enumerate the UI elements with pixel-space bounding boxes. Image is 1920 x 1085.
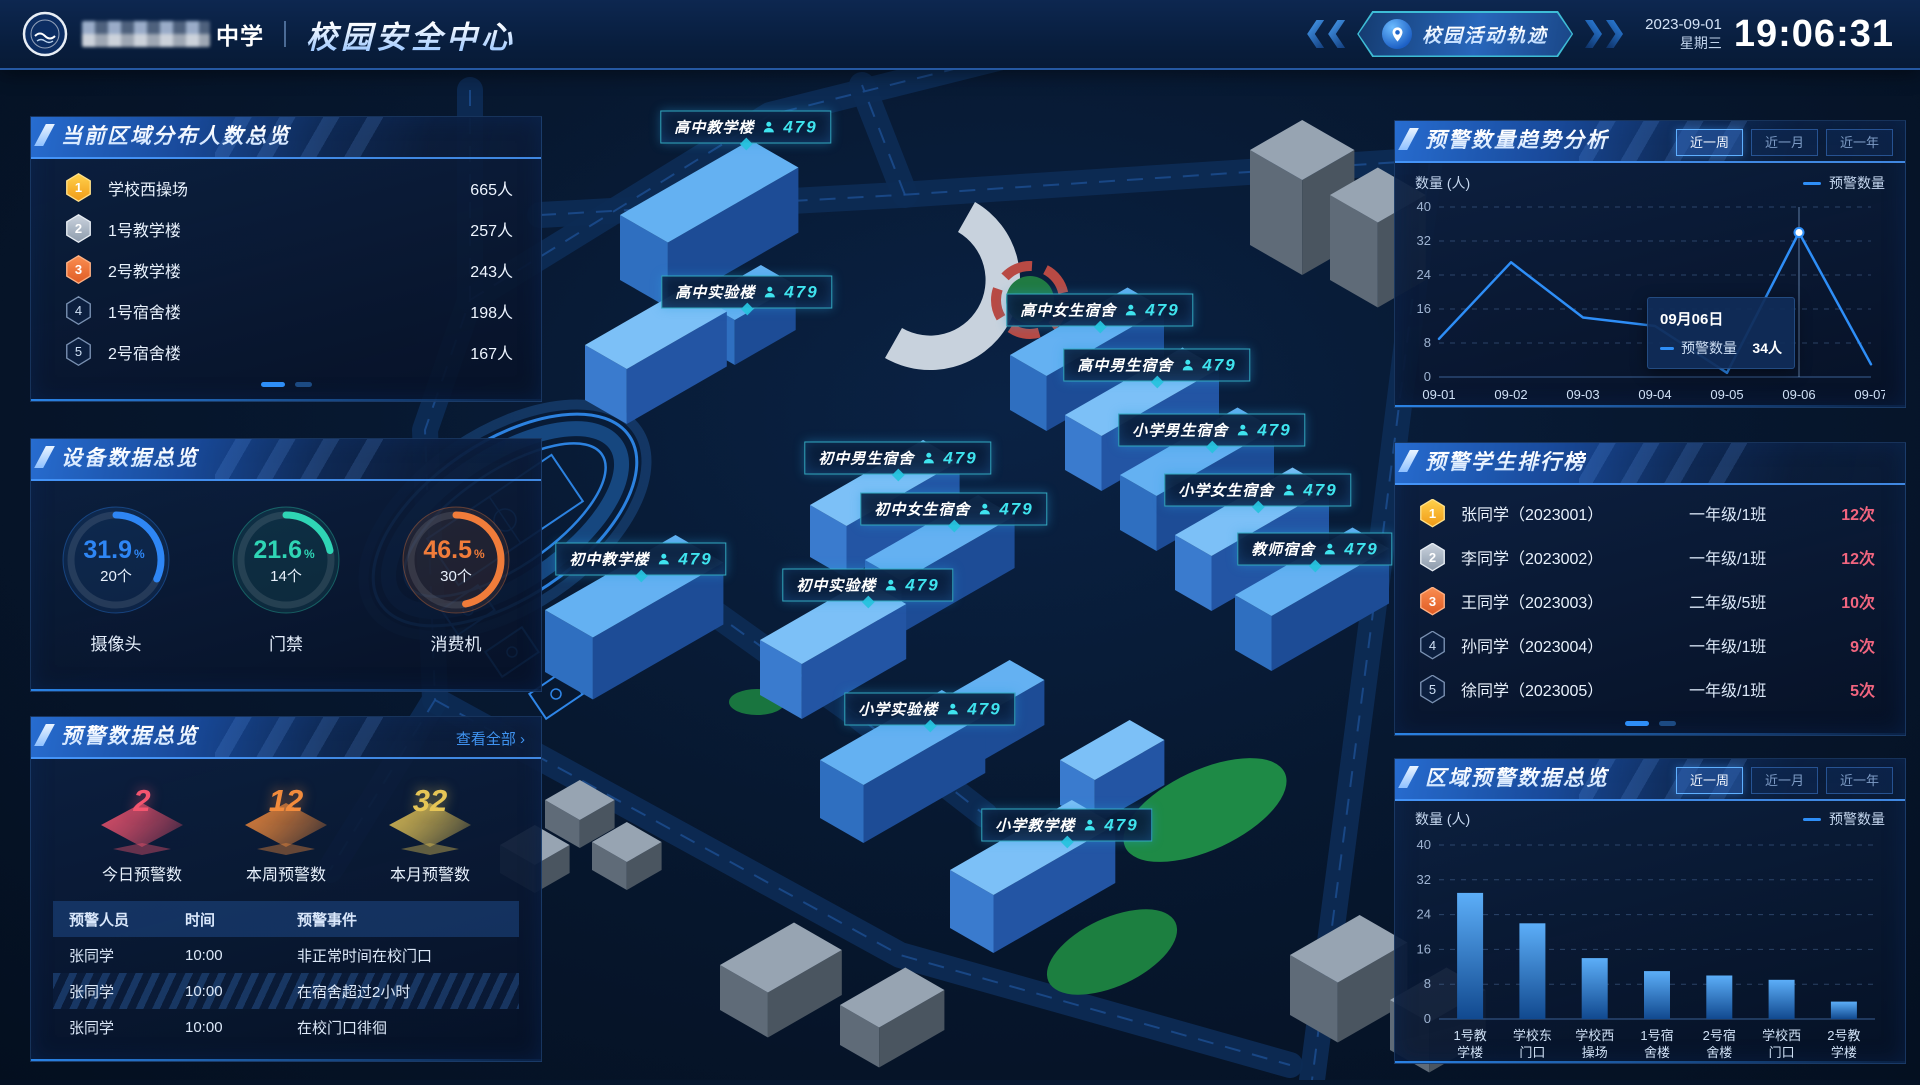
building-name: 高中教学楼	[674, 117, 754, 138]
person-icon	[884, 579, 897, 592]
stat-diamond-reflection	[401, 843, 459, 855]
building-label[interactable]: 小学男生宿舍 479	[1118, 414, 1305, 447]
building-label[interactable]: 教师宿舍 479	[1237, 533, 1392, 566]
svg-text:0: 0	[1424, 369, 1431, 384]
building-pin-icon	[1151, 376, 1164, 389]
warning-count: 12次	[1841, 501, 1875, 525]
student-name: 张同学（2023001）	[1461, 501, 1689, 525]
svg-text:40: 40	[1417, 199, 1431, 214]
stat-value: 12	[227, 783, 345, 819]
tab-近一月[interactable]: 近一月	[1751, 129, 1818, 156]
warning-stat: 12 本周预警数	[227, 783, 345, 885]
building-pin-icon	[948, 520, 961, 533]
svg-text:8: 8	[1424, 335, 1431, 350]
student-class: 一年级/1班	[1689, 633, 1850, 657]
building-count: 479	[1145, 300, 1179, 320]
location-pin-icon	[1382, 19, 1412, 49]
person-icon	[1236, 424, 1249, 437]
warning-data-panel: 预警数据总览 查看全部 › 2 今日预警数12 本周预警数32 本月预警数 预警…	[30, 716, 542, 1062]
gauge-ring: 21.6% 14个	[227, 501, 345, 619]
warning-stat: 32 本月预警数	[371, 783, 489, 885]
svg-text:门口: 门口	[1519, 1045, 1545, 1060]
gauge-label: 消费机	[377, 630, 535, 655]
rank-badge: 4	[1419, 631, 1446, 660]
svg-text:学楼: 学楼	[1831, 1045, 1857, 1060]
svg-text:1号教: 1号教	[1453, 1028, 1486, 1043]
page-dot[interactable]	[1625, 721, 1649, 726]
area-name: 2号教学楼	[108, 258, 470, 282]
student-name: 徐同学（2023005）	[1461, 677, 1689, 701]
device-gauge: 31.9% 20个 摄像头	[37, 501, 195, 655]
legend: 预警数量	[1803, 809, 1885, 829]
panel-title: 预警数据总览	[31, 717, 199, 757]
rank-badge: 4	[65, 296, 92, 325]
view-all-link[interactable]: 查看全部 ›	[456, 728, 525, 749]
building-pin-icon	[892, 469, 905, 482]
building-count: 479	[783, 117, 817, 137]
track-button-label: 校园活动轨迹	[1422, 21, 1548, 48]
building-name: 高中女生宿舍	[1020, 300, 1116, 321]
tooltip-value: 34人	[1752, 338, 1782, 358]
building-count: 479	[784, 282, 818, 302]
svg-text:20个: 20个	[100, 568, 132, 585]
rank-badge: 3	[65, 255, 92, 284]
area-row: 2 1号教学楼 257人	[31, 208, 541, 249]
current-time: 19:06:31	[1734, 13, 1894, 56]
area-row: 4 1号宿舍楼 198人	[31, 290, 541, 331]
region-warning-panel: 区域预警数据总览 近一周近一月近一年 数量 (人) 预警数量 081624324…	[1394, 758, 1906, 1064]
stat-label: 今日预警数	[83, 861, 201, 885]
area-distribution-panel: 当前区域分布人数总览 1 学校西操场 665人2 1号教学楼 257人3 2号教…	[30, 116, 542, 402]
region-bar-chart[interactable]: 08162432401号教学楼学校东门口学校西操场1号宿舍楼2号宿舍楼学校西门口…	[1403, 831, 1897, 1072]
top-header: 中学 校园安全中心 校园活动轨迹 2023-09-01 星期三 19:06:31	[0, 0, 1920, 70]
svg-text:学校西: 学校西	[1762, 1028, 1801, 1043]
table-header-row: 预警人员时间预警事件	[53, 901, 519, 937]
student-name: 李同学（2023002）	[1461, 545, 1689, 569]
area-name: 学校西操场	[108, 176, 470, 200]
building-pin-icon	[924, 720, 937, 733]
school-logo	[22, 11, 68, 57]
building-pin-icon	[1309, 560, 1322, 573]
gauge-ring: 46.5% 30个	[397, 501, 515, 619]
building-label[interactable]: 小学实验楼 479	[844, 693, 1015, 726]
gauge-row: 31.9% 20个 摄像头 21.6% 14个 门禁 46.5% 30个 消费机	[31, 481, 541, 655]
student-name: 孙同学（2023004）	[1461, 633, 1689, 657]
svg-text:舍楼: 舍楼	[1706, 1045, 1732, 1060]
person-icon	[1181, 359, 1194, 372]
svg-text:0: 0	[1424, 1011, 1431, 1026]
tooltip-series-swatch	[1660, 347, 1674, 350]
person-icon	[946, 703, 959, 716]
stat-value: 32	[371, 783, 489, 819]
page-dot[interactable]	[295, 382, 312, 387]
chart-tooltip: 09月06日 预警数量 34人	[1647, 297, 1795, 369]
svg-text:2号教: 2号教	[1827, 1028, 1860, 1043]
svg-text:09-05: 09-05	[1710, 387, 1743, 402]
building-count: 479	[943, 448, 977, 468]
building-label[interactable]: 高中实验楼 479	[661, 276, 832, 309]
ranking-pagination	[1395, 721, 1905, 726]
student-class: 一年级/1班	[1689, 545, 1841, 569]
page-title: 校园安全中心	[306, 12, 516, 57]
stat-label: 本月预警数	[371, 861, 489, 885]
stat-label: 本周预警数	[227, 861, 345, 885]
ranking-row: 5 徐同学（2023005） 一年级/1班 5次	[1395, 667, 1905, 711]
panel-title: 预警数量趋势分析	[1395, 121, 1609, 161]
device-gauge: 21.6% 14个 门禁	[207, 501, 365, 655]
panel-title: 区域预警数据总览	[1395, 759, 1609, 799]
building-label[interactable]: 初中教学楼 479	[555, 543, 726, 576]
header-divider	[284, 21, 286, 47]
svg-text:09-06: 09-06	[1782, 387, 1815, 402]
svg-text:09-03: 09-03	[1566, 387, 1599, 402]
date-block: 2023-09-01 星期三	[1645, 16, 1722, 52]
chevron-left-decoration	[1307, 20, 1345, 48]
tooltip-date: 09月06日	[1660, 308, 1782, 329]
ranking-list: 1 张同学（2023001） 一年级/1班 12次2 李同学（2023002） …	[1395, 485, 1905, 711]
page-dot[interactable]	[1659, 721, 1676, 726]
ranking-row: 2 李同学（2023002） 一年级/1班 12次	[1395, 535, 1905, 579]
svg-text:40: 40	[1417, 837, 1431, 852]
area-name: 1号宿舍楼	[108, 299, 470, 323]
area-name: 1号教学楼	[108, 217, 470, 241]
panel-title: 预警学生排行榜	[1395, 443, 1586, 483]
building-name: 小学男生宿舍	[1132, 420, 1228, 441]
panel-title: 设备数据总览	[31, 439, 199, 479]
svg-text:09-07: 09-07	[1854, 387, 1885, 402]
person-icon	[1323, 543, 1336, 556]
ranking-row: 3 王同学（2023003） 二年级/5班 10次	[1395, 579, 1905, 623]
table-row: 张同学10:00非正常时间在校门口	[53, 937, 519, 973]
student-class: 一年级/1班	[1689, 677, 1850, 701]
svg-text:24: 24	[1417, 267, 1431, 282]
warning-stats: 2 今日预警数12 本周预警数32 本月预警数	[31, 759, 541, 889]
svg-text:32: 32	[1417, 872, 1431, 887]
person-icon	[762, 121, 775, 134]
gauge-label: 摄像头	[37, 630, 195, 655]
trend-analysis-panel: 预警数量趋势分析 近一周近一月近一年 数量 (人) 预警数量 081624324…	[1394, 120, 1906, 408]
legend-line-swatch	[1803, 818, 1821, 821]
table-row: 张同学10:00在校门口徘徊	[53, 1009, 519, 1045]
building-label[interactable]: 高中男生宿舍 479	[1063, 349, 1250, 382]
stat-diamond-reflection	[257, 843, 315, 855]
building-count: 479	[967, 699, 1001, 719]
y-axis-label: 数量 (人)	[1415, 173, 1470, 193]
device-data-panel: 设备数据总览 31.9% 20个 摄像头 21.6% 14个 门禁 46.5% …	[30, 438, 542, 692]
legend-line-swatch	[1803, 182, 1821, 185]
school-name-blurred	[82, 21, 210, 47]
building-name: 初中实验楼	[796, 575, 876, 596]
svg-text:09-04: 09-04	[1638, 387, 1671, 402]
building-pin-icon	[635, 570, 648, 583]
building-pin-icon	[862, 596, 875, 609]
page-dot[interactable]	[261, 382, 285, 387]
area-name: 2号宿舍楼	[108, 340, 470, 364]
warning-count: 5次	[1850, 677, 1875, 701]
rank-badge: 1	[1419, 499, 1446, 528]
svg-text:30个: 30个	[440, 568, 472, 585]
area-count: 198人	[470, 299, 513, 323]
building-name: 小学实验楼	[858, 699, 938, 720]
building-pin-icon	[740, 138, 753, 151]
building-pin-icon	[1252, 501, 1265, 514]
warning-count: 10次	[1841, 589, 1875, 613]
current-weekday: 星期三	[1645, 35, 1722, 53]
building-pin-icon	[1061, 836, 1074, 849]
svg-text:16: 16	[1417, 941, 1431, 956]
area-count: 665人	[470, 176, 513, 200]
building-name: 小学教学楼	[995, 815, 1075, 836]
school-name-suffix: 中学	[216, 17, 264, 51]
rank-badge: 2	[1419, 543, 1446, 572]
building-count: 479	[905, 575, 939, 595]
tab-近一年[interactable]: 近一年	[1826, 767, 1893, 794]
building-label[interactable]: 高中教学楼 479	[660, 111, 831, 144]
stat-value: 2	[83, 783, 201, 819]
person-icon	[763, 286, 776, 299]
table-row: 张同学10:00在宿舍超过2小时	[53, 973, 519, 1009]
area-count: 167人	[470, 340, 513, 364]
tooltip-series: 预警数量	[1681, 338, 1737, 358]
building-label[interactable]: 初中实验楼 479	[782, 569, 953, 602]
student-class: 一年级/1班	[1689, 501, 1841, 525]
svg-text:门口: 门口	[1769, 1045, 1795, 1060]
svg-text:09-01: 09-01	[1422, 387, 1455, 402]
svg-text:8: 8	[1424, 976, 1431, 991]
building-label[interactable]: 小学女生宿舍 479	[1164, 474, 1351, 507]
chevron-right-decoration	[1585, 20, 1623, 48]
warning-count: 12次	[1841, 545, 1875, 569]
svg-text:学楼: 学楼	[1457, 1045, 1483, 1060]
school-name: 中学	[82, 17, 264, 51]
rank-badge: 3	[1419, 587, 1446, 616]
svg-text:09-02: 09-02	[1494, 387, 1527, 402]
gauge-ring: 31.9% 20个	[57, 501, 175, 619]
building-name: 初中女生宿舍	[874, 499, 970, 520]
svg-text:2号宿: 2号宿	[1703, 1028, 1736, 1043]
building-name: 高中实验楼	[675, 282, 755, 303]
student-ranking-panel: 预警学生排行榜 1 张同学（2023001） 一年级/1班 12次2 李同学（2…	[1394, 442, 1906, 736]
building-name: 小学女生宿舍	[1178, 480, 1274, 501]
area-count: 257人	[470, 217, 513, 241]
area-count: 243人	[470, 258, 513, 282]
person-icon	[1282, 484, 1295, 497]
warning-stat: 2 今日预警数	[83, 783, 201, 885]
svg-text:舍楼: 舍楼	[1644, 1045, 1670, 1060]
svg-text:14个: 14个	[270, 568, 302, 585]
tab-近一月[interactable]: 近一月	[1751, 767, 1818, 794]
area-row: 1 学校西操场 665人	[31, 167, 541, 208]
area-list: 1 学校西操场 665人2 1号教学楼 257人3 2号教学楼 243人4 1号…	[31, 159, 541, 372]
region-tabs: 近一周近一月近一年	[1676, 767, 1893, 794]
svg-text:学校西: 学校西	[1575, 1028, 1614, 1043]
building-pin-icon	[1206, 441, 1219, 454]
building-count: 479	[1104, 815, 1138, 835]
building-count: 479	[1257, 420, 1291, 440]
building-label[interactable]: 初中男生宿舍 479	[804, 442, 991, 475]
tab-近一年[interactable]: 近一年	[1826, 129, 1893, 156]
building-name: 初中教学楼	[569, 549, 649, 570]
svg-text:操场: 操场	[1582, 1045, 1608, 1060]
svg-text:24: 24	[1417, 907, 1431, 922]
svg-text:1号宿: 1号宿	[1640, 1028, 1673, 1043]
building-label[interactable]: 小学教学楼 479	[981, 809, 1152, 842]
building-label[interactable]: 初中女生宿舍 479	[860, 493, 1047, 526]
ranking-row: 1 张同学（2023001） 一年级/1班 12次	[1395, 491, 1905, 535]
building-count: 479	[999, 499, 1033, 519]
stat-diamond-reflection	[113, 843, 171, 855]
building-name: 初中男生宿舍	[818, 448, 914, 469]
student-class: 二年级/5班	[1689, 589, 1841, 613]
building-count: 479	[1344, 539, 1378, 559]
person-icon	[657, 553, 670, 566]
area-row: 5 2号宿舍楼 167人	[31, 331, 541, 372]
person-icon	[1124, 304, 1137, 317]
building-label[interactable]: 高中女生宿舍 479	[1006, 294, 1193, 327]
tab-近一周[interactable]: 近一周	[1676, 767, 1743, 794]
building-count: 479	[1202, 355, 1236, 375]
ranking-row: 4 孙同学（2023004） 一年级/1班 9次	[1395, 623, 1905, 667]
student-name: 王同学（2023003）	[1461, 589, 1689, 613]
building-pin-icon	[1094, 321, 1107, 334]
svg-text:32: 32	[1417, 233, 1431, 248]
panel-title: 当前区域分布人数总览	[31, 117, 291, 157]
building-count: 479	[1303, 480, 1337, 500]
gauge-label: 门禁	[207, 630, 365, 655]
rank-badge: 2	[65, 214, 92, 243]
building-name: 教师宿舍	[1251, 539, 1315, 560]
rank-badge: 1	[65, 173, 92, 202]
person-icon	[922, 452, 935, 465]
building-count: 479	[678, 549, 712, 569]
person-icon	[1083, 819, 1096, 832]
warning-count: 9次	[1850, 633, 1875, 657]
person-icon	[978, 503, 991, 516]
warning-table: 预警人员时间预警事件张同学10:00非正常时间在校门口张同学10:00在宿舍超过…	[53, 901, 519, 1045]
trend-tabs: 近一周近一月近一年	[1676, 129, 1893, 156]
area-row: 3 2号教学楼 243人	[31, 249, 541, 290]
current-date: 2023-09-01	[1645, 16, 1722, 35]
legend: 预警数量	[1803, 173, 1885, 193]
svg-text:学校东: 学校东	[1513, 1028, 1552, 1043]
building-pin-icon	[741, 303, 754, 316]
rank-badge: 5	[1419, 675, 1446, 704]
tab-近一周[interactable]: 近一周	[1676, 129, 1743, 156]
device-gauge: 46.5% 30个 消费机	[377, 501, 535, 655]
building-name: 高中男生宿舍	[1077, 355, 1173, 376]
y-axis-label: 数量 (人)	[1415, 809, 1470, 829]
campus-activity-track-button[interactable]: 校园活动轨迹	[1359, 13, 1572, 56]
rank-badge: 5	[65, 337, 92, 366]
area-pagination	[31, 382, 541, 387]
svg-text:16: 16	[1417, 301, 1431, 316]
